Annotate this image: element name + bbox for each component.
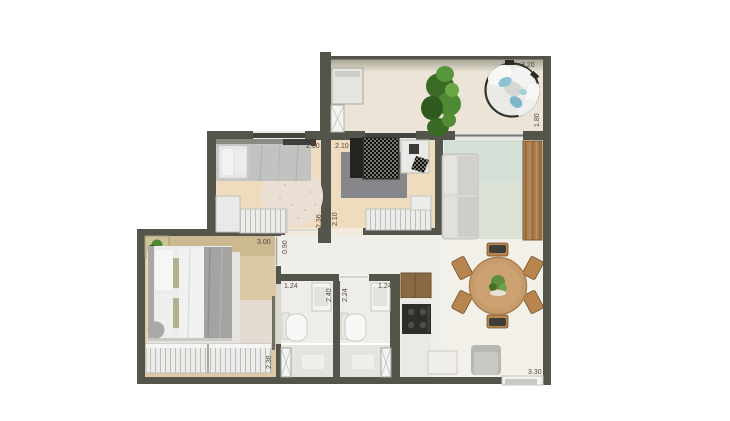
svg-text:3.20: 3.20 <box>521 62 535 69</box>
svg-text:2.24: 2.24 <box>342 288 349 302</box>
svg-text:2.40: 2.40 <box>326 288 333 302</box>
svg-text:2.10: 2.10 <box>335 143 349 150</box>
svg-text:2.00: 2.00 <box>306 143 320 150</box>
svg-text:3.00: 3.00 <box>257 239 271 246</box>
svg-text:1.24: 1.24 <box>378 283 392 290</box>
svg-text:2.36: 2.36 <box>316 214 323 228</box>
svg-text:2.36: 2.36 <box>266 355 273 369</box>
svg-text:3.30: 3.30 <box>528 369 542 376</box>
svg-text:1.80: 1.80 <box>534 113 541 127</box>
svg-text:1.24: 1.24 <box>284 283 298 290</box>
svg-text:2.10: 2.10 <box>332 212 339 226</box>
svg-text:0.90: 0.90 <box>282 240 289 254</box>
